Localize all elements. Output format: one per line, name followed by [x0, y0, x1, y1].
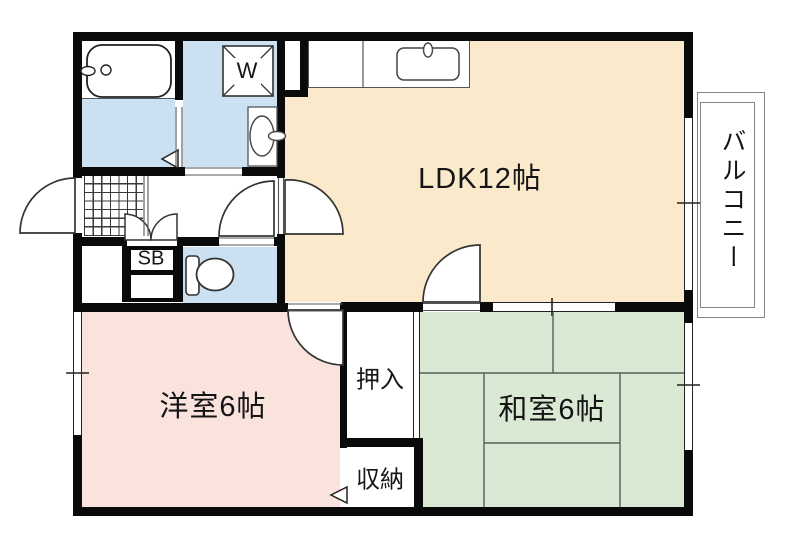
wall-top: [73, 32, 693, 41]
wall-right-3: [684, 450, 693, 510]
pipe-niche: [285, 41, 300, 90]
wall-western-top: [73, 303, 288, 312]
wall-left-3: [73, 435, 82, 511]
japanese-room-window: [684, 323, 693, 450]
shoe-box-label: SB: [138, 248, 165, 271]
shoe-box-door-right: [151, 214, 177, 240]
entry-side-closet: [84, 246, 122, 302]
wall-niche-bottom: [285, 90, 308, 97]
wall-service-bot-a: [73, 237, 125, 246]
toilet-door-swing: [219, 181, 274, 236]
shuno-label: 収納: [356, 460, 404, 495]
wall-niche-right: [300, 32, 308, 97]
wall-ldk-bottom-b: [480, 302, 493, 312]
washer-label: W: [237, 58, 258, 84]
ldk-label: LDK12帖: [418, 155, 542, 197]
japanese-room-label: 和室6帖: [498, 386, 605, 428]
entrance-door-swing: [20, 178, 75, 233]
western-room-label: 洋室6帖: [159, 383, 266, 425]
room-toilet: [183, 247, 277, 303]
wall-right-1: [684, 32, 693, 118]
western-room-window: [73, 312, 82, 435]
oshiire-fusuma-doors: [413, 312, 420, 438]
wall-washroom-ldk: [277, 32, 285, 178]
wall-service-top-a: [73, 167, 185, 176]
oshiire-label: 押入: [356, 360, 404, 395]
bathtub-platform: [82, 41, 175, 99]
wall-service-bot-b: [177, 237, 219, 246]
wall-bottom: [73, 507, 693, 516]
wall-ldk-bottom-a: [341, 302, 423, 312]
genkan-tile-floor: [84, 176, 143, 236]
ldk-japanese-sliding-door: [493, 302, 615, 312]
wall-service-bot-c: [274, 237, 285, 246]
kitchen-counter: [308, 41, 470, 88]
entrance-opening: [73, 178, 82, 233]
balcony-label: バルコニー: [714, 128, 750, 308]
ldk-window: [684, 118, 693, 290]
wall-oshiire-left: [340, 303, 347, 448]
floor-plan: LDK12帖 洋室6帖 和室6帖 押入 収納 SB W バルコニー: [0, 0, 800, 559]
wall-bath-washroom: [175, 32, 183, 100]
wall-ldk-bottom-c: [615, 302, 693, 312]
shoe-box-lower: [127, 271, 177, 302]
wall-left-1: [73, 32, 82, 178]
room-washroom: [183, 41, 277, 167]
wall-shuno-right: [414, 438, 423, 507]
wall-oshiire-bottom: [340, 438, 423, 447]
wall-service-top-b: [242, 167, 285, 176]
wall-sb-toilet: [177, 237, 183, 302]
